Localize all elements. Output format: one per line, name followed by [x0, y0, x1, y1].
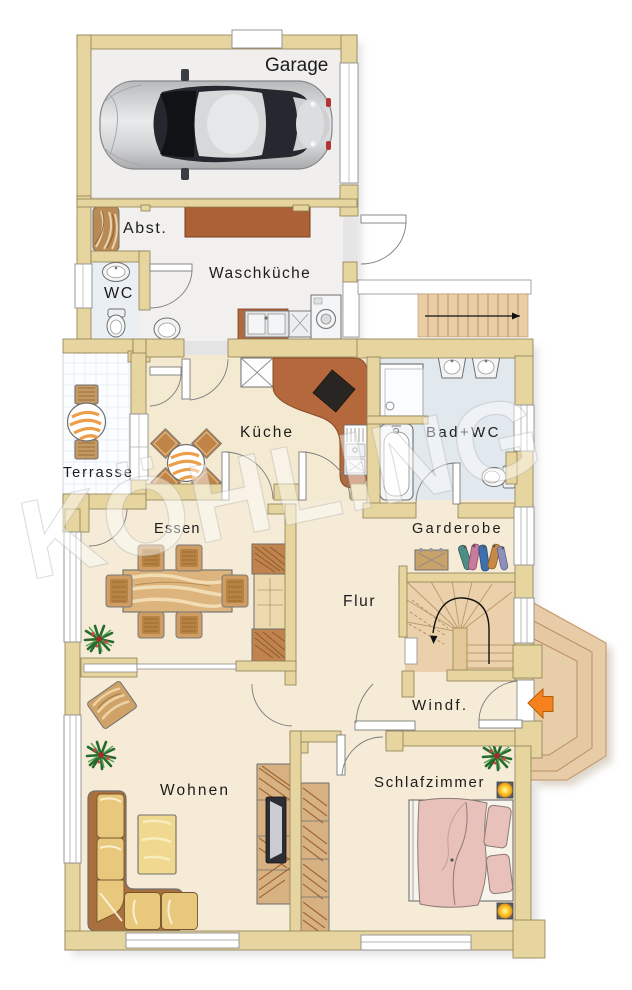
svg-text:Abst.: Abst.: [123, 220, 167, 237]
svg-text:WC: WC: [104, 285, 134, 302]
svg-text:Wohnen: Wohnen: [160, 782, 230, 799]
svg-text:Garderobe: Garderobe: [412, 521, 503, 537]
svg-text:Schlafzimmer: Schlafzimmer: [374, 774, 485, 791]
svg-text:Windf.: Windf.: [412, 697, 468, 714]
svg-text:Flur: Flur: [343, 593, 376, 610]
svg-text:Waschküche: Waschküche: [209, 265, 311, 282]
svg-text:Garage: Garage: [265, 55, 328, 76]
